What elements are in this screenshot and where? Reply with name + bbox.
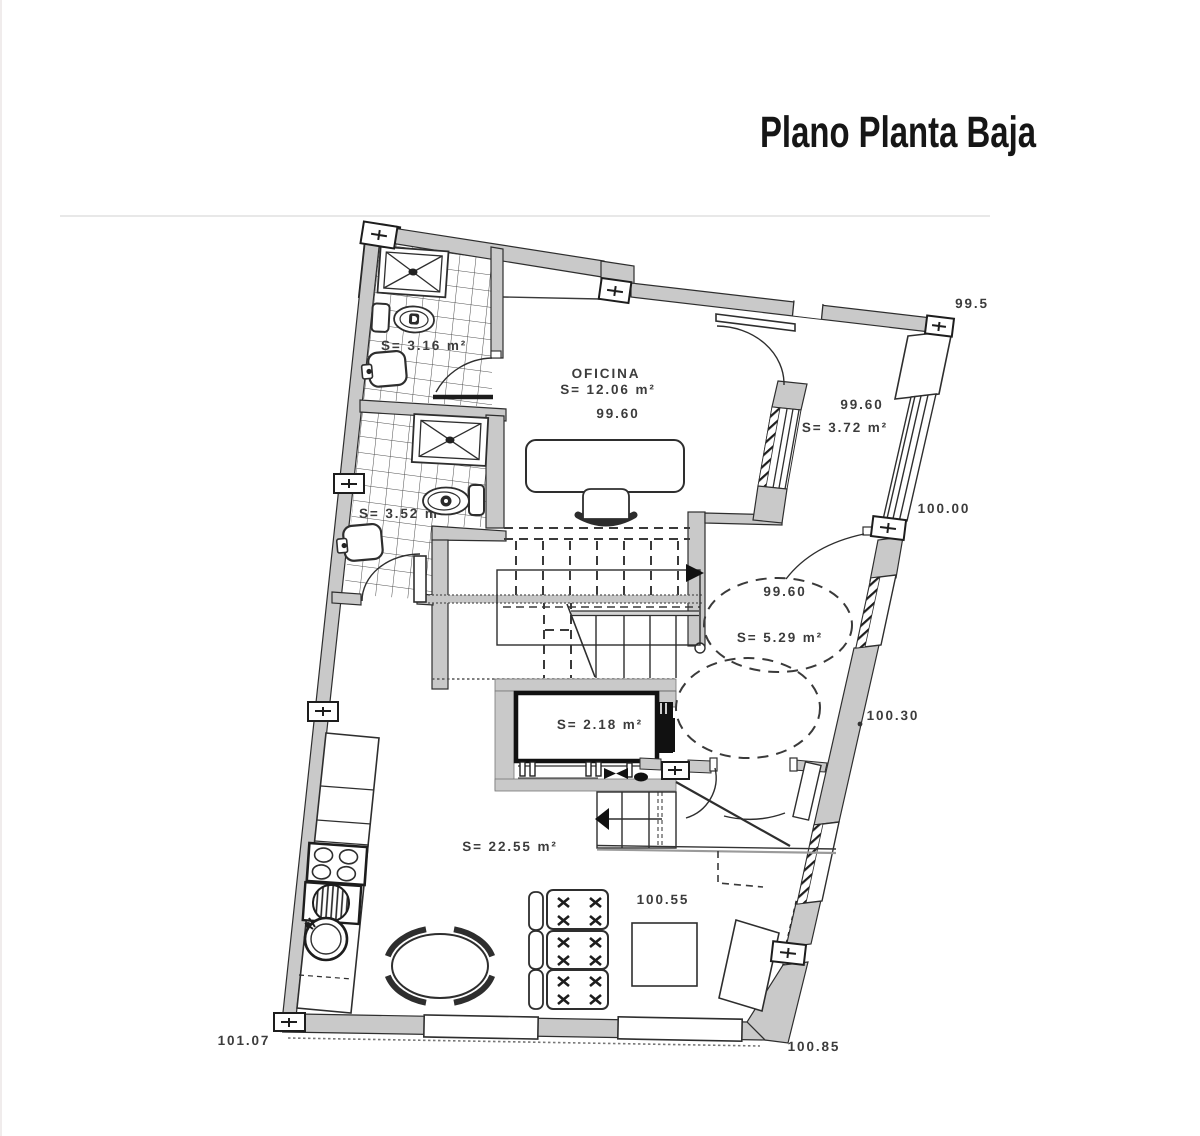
svg-text:S= 12.06 m²: S= 12.06 m²: [560, 382, 656, 397]
svg-text:Plano Planta Baja: Plano Planta Baja: [760, 108, 1036, 157]
svg-text:S= 22.55 m²: S= 22.55 m²: [462, 839, 558, 854]
svg-text:OFICINA: OFICINA: [572, 366, 641, 381]
svg-text:99.5: 99.5: [955, 296, 989, 311]
svg-text:S= 3.72 m²: S= 3.72 m²: [802, 420, 888, 435]
svg-text:99.60: 99.60: [763, 584, 806, 599]
svg-text:100.00: 100.00: [918, 501, 971, 516]
svg-text:99.60: 99.60: [840, 397, 883, 412]
svg-text:S= 5.29 m²: S= 5.29 m²: [737, 630, 823, 645]
svg-text:101.07: 101.07: [218, 1033, 271, 1048]
svg-text:100.30: 100.30: [867, 708, 920, 723]
svg-text:S= 2.18 m²: S= 2.18 m²: [557, 717, 643, 732]
svg-text:100.85: 100.85: [788, 1039, 841, 1054]
svg-text:99.60: 99.60: [596, 406, 639, 421]
svg-text:100.55: 100.55: [637, 892, 690, 907]
